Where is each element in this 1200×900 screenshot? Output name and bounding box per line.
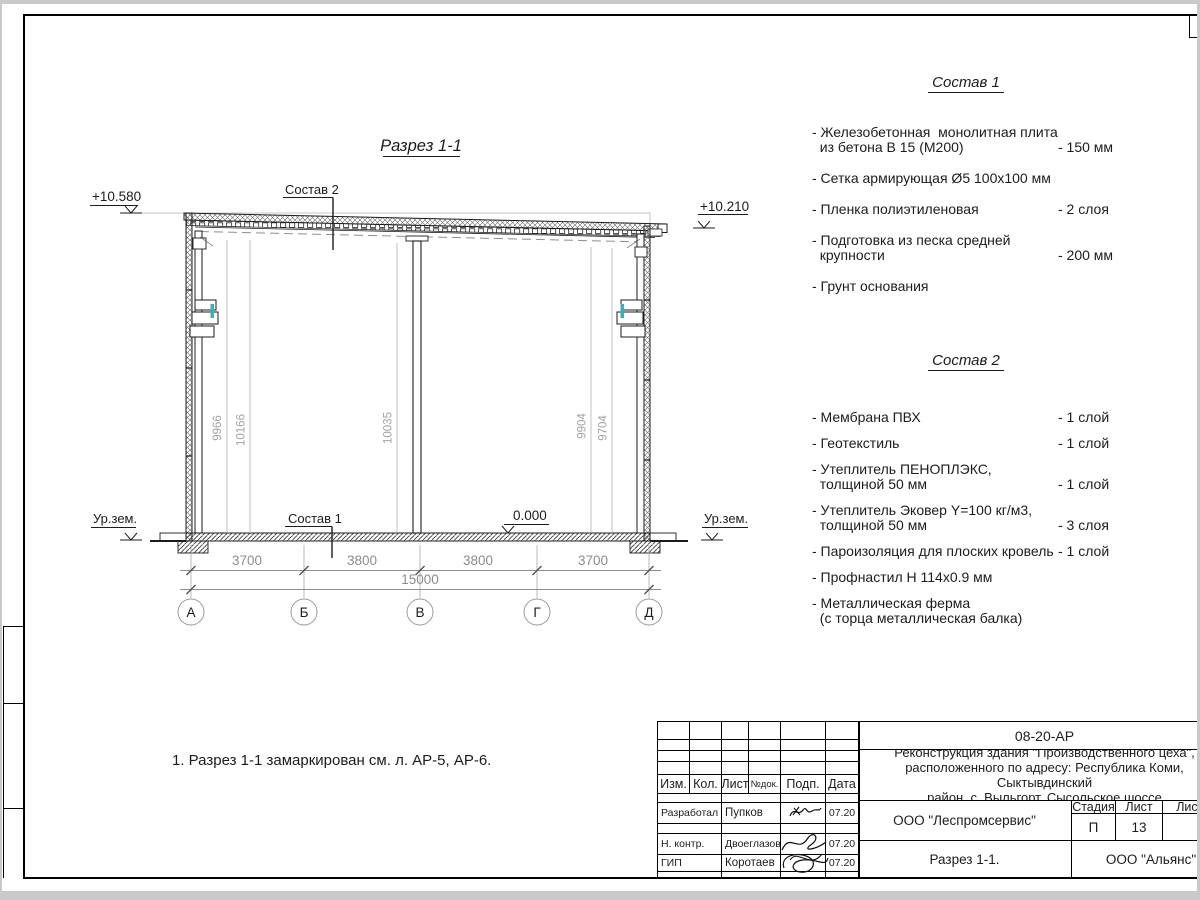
tb-sheets-header: Листов <box>1163 801 1200 813</box>
drawing-sheet: 9966 10166 10035 9904 9704 Разрез 1-1 Со… <box>0 0 1200 900</box>
right-wall <box>627 226 650 541</box>
floor-slab <box>150 533 688 553</box>
axis-bubbles: А Б В Г Д <box>178 599 662 625</box>
svg-text:15000: 15000 <box>401 572 439 587</box>
axis-label: Г <box>533 605 541 620</box>
tb-sheet-header: Лист <box>1116 801 1162 813</box>
axis-label: Б <box>300 605 309 620</box>
sheet-note: 1. Разрез 1-1 замаркирован см. л. АР-5, … <box>172 752 491 769</box>
tb-stage-value: П <box>1072 814 1115 840</box>
page-edge-bottom <box>0 891 1200 900</box>
middle-column <box>406 236 428 533</box>
signature-pupkov <box>784 803 824 823</box>
tb-name-dvoeglazov: Двоеглазов <box>722 834 782 853</box>
tb-col-ndok: №док. <box>749 775 780 793</box>
tb-col-izm: Изм. <box>658 775 689 793</box>
axis-label: А <box>186 605 195 620</box>
tb-col-data: Дата <box>826 775 858 793</box>
svg-text:3800: 3800 <box>347 553 377 568</box>
left-wall <box>186 213 213 541</box>
dimension-chain: 3700 3800 3800 3700 15000 <box>180 545 661 598</box>
tb-doc-number: 08-20-АР <box>859 722 1200 749</box>
svg-text:Ур.зем.: Ур.зем. <box>93 511 137 526</box>
foundation-left <box>178 541 208 553</box>
page-edge-top <box>0 0 1200 4</box>
svg-text:3700: 3700 <box>232 553 262 568</box>
svg-text:9966: 9966 <box>212 415 224 441</box>
composition-list-2: Состав 2 - Мембрана ПВХ- 1 слой - Геотек… <box>812 352 1120 626</box>
tb-date-1: 07.20 <box>826 803 858 823</box>
svg-text:3800: 3800 <box>463 553 493 568</box>
tb-sheet-name: Разрез 1-1. <box>859 841 1070 878</box>
right-bracket <box>617 300 645 337</box>
axis-label: В <box>415 605 424 620</box>
tb-project-name: Реконструкция здания "Производственного … <box>859 750 1200 800</box>
foundation-right <box>630 541 660 553</box>
list-item: - Утеплитель Эковер Y=100 кг/м3, толщино… <box>812 503 1120 533</box>
svg-text:Ур.зем.: Ур.зем. <box>704 511 748 526</box>
list-item: - Грунт основания <box>812 279 1120 294</box>
elevation-right: +10.210 <box>693 199 749 228</box>
tb-role-razrabotal: Разработал <box>658 803 724 823</box>
list-item: - Утеплитель ПЕНОПЛЭКС, толщиной 50 мм- … <box>812 462 1120 492</box>
tb-sheet-value: 13 <box>1116 814 1162 840</box>
tb-role-nkontr: Н. контр. <box>658 834 724 853</box>
svg-text:+10.580: +10.580 <box>92 189 141 204</box>
list-item: - Мембрана ПВХ- 1 слой <box>812 410 1120 425</box>
svg-text:Состав 1: Состав 1 <box>288 511 342 526</box>
signature-flourish <box>776 830 832 876</box>
tb-name-pupkov: Пупков <box>722 803 782 823</box>
composition-1-title: Состав 1 <box>812 74 1120 91</box>
tb-col-kol: Кол. <box>690 775 721 793</box>
svg-text:9904: 9904 <box>577 413 589 439</box>
list-item: - Сетка армирующая Ø5 100х100 мм <box>812 171 1120 186</box>
tb-sheets-value <box>1163 814 1200 840</box>
list-item: - Металлическая ферма (с торца металличе… <box>812 596 1120 626</box>
tb-col-list: Лист <box>722 775 748 793</box>
svg-text:9704: 9704 <box>598 415 610 441</box>
bracket-accent-mark <box>621 304 625 318</box>
list-item: - Профнастил Н 114х0.9 мм <box>812 570 1120 585</box>
ground-level-right: Ур.зем. <box>701 511 748 540</box>
tb-stage-header: Стадия <box>1072 801 1115 813</box>
list-item: - Пленка полиэтиленовая- 2 слоя <box>812 202 1120 217</box>
svg-text:10035: 10035 <box>383 412 395 444</box>
tb-role-gip: ГИП <box>658 855 724 870</box>
left-bracket <box>190 300 218 337</box>
list-item: - Геотекстиль- 1 слой <box>812 436 1120 451</box>
svg-text:Состав 2: Состав 2 <box>285 182 339 197</box>
tb-org-client: ООО "Альянс" <box>1072 841 1200 878</box>
list-item: - Железобетонная монолитная плита из бет… <box>812 125 1120 155</box>
page-edge-left <box>0 0 2 900</box>
svg-text:0.000: 0.000 <box>513 508 547 523</box>
elevation-zero: 0.000 <box>502 508 549 533</box>
list-item: - Подготовка из песка средней крупности-… <box>812 233 1120 263</box>
composition-list-1: Состав 1 - Железобетонная монолитная пли… <box>812 74 1120 294</box>
svg-text:10166: 10166 <box>236 414 248 446</box>
list-item: - Пароизоляция для плоских кровель- 1 сл… <box>812 544 1120 559</box>
composition-2-title: Состав 2 <box>812 352 1120 369</box>
tb-org-design: ООО "Леспромсервис" <box>859 801 1070 840</box>
elevation-left: +10.580 <box>90 189 142 213</box>
tb-name-korotaev: Коротаев <box>722 855 782 870</box>
svg-text:Разрез 1-1: Разрез 1-1 <box>380 137 462 155</box>
svg-text:3700: 3700 <box>578 553 608 568</box>
tb-col-podp: Подп. <box>781 775 825 793</box>
svg-text:+10.210: +10.210 <box>700 199 749 214</box>
axis-label: Д <box>644 605 653 620</box>
bracket-accent-mark <box>211 304 215 318</box>
vertical-dimension-labels: 9966 10166 10035 9904 9704 <box>212 412 610 446</box>
view-title: Разрез 1-1 <box>380 137 462 157</box>
ground-level-left: Ур.зем. <box>91 511 142 540</box>
